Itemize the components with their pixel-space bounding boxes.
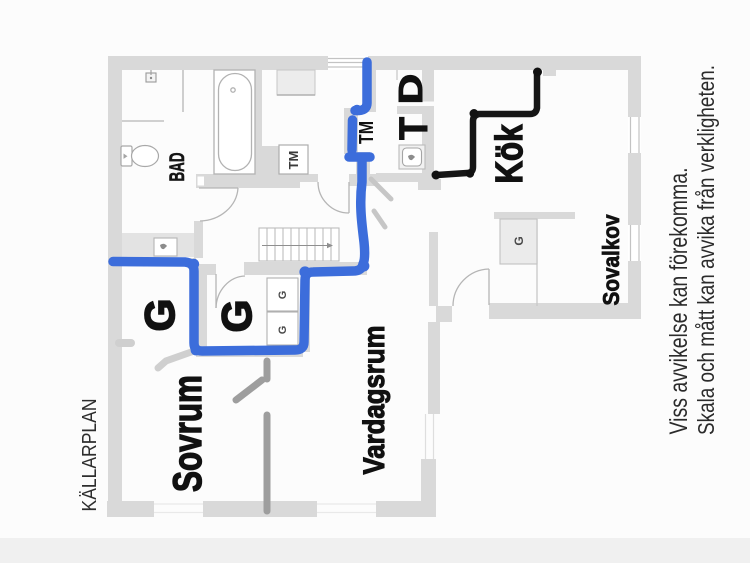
svg-text:G: G <box>512 236 526 245</box>
svg-text:BAD: BAD <box>166 153 189 182</box>
svg-text:Kök: Kök <box>489 124 531 184</box>
svg-text:T: T <box>392 117 436 140</box>
svg-text:Sovrum: Sovrum <box>166 375 210 492</box>
svg-text:G: G <box>213 300 260 333</box>
svg-text:G: G <box>277 326 289 335</box>
svg-text:D: D <box>393 74 430 105</box>
svg-text:TM: TM <box>286 151 301 170</box>
svg-text:Skala och mått kan avvika från: Skala och mått kan avvika från verklighe… <box>693 65 719 435</box>
svg-text:Viss avvikelse kan förekomma.: Viss avvikelse kan förekomma. <box>665 168 693 435</box>
svg-text:Vardagsrum: Vardagsrum <box>358 326 391 475</box>
svg-text:KÄLLARPLAN: KÄLLARPLAN <box>79 399 101 512</box>
svg-text:G: G <box>277 291 289 300</box>
svg-text:Sovalkov: Sovalkov <box>598 215 624 306</box>
svg-text:G: G <box>136 299 183 332</box>
svg-text:TM: TM <box>356 121 378 144</box>
